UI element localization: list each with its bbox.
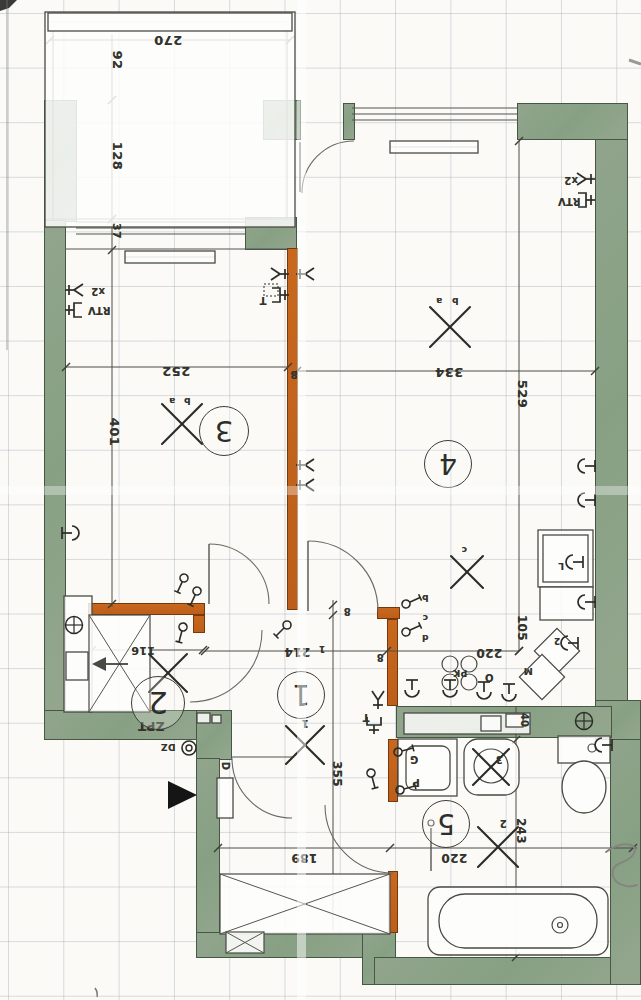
dimension-label: 334 (435, 365, 463, 380)
dimension-label: 2 (554, 636, 561, 646)
dimension-label: 116 (131, 644, 155, 657)
scan-speck (95, 988, 97, 997)
tv-outlet-icon (296, 479, 314, 491)
tv-outlet-icon (65, 284, 83, 296)
kitchen-counter (540, 587, 593, 620)
dimension-label: 214 (284, 645, 310, 659)
rtv-outlet-icon (578, 193, 595, 207)
switch-icon (401, 590, 423, 612)
dimension-label: a (436, 296, 442, 306)
meter-box (197, 713, 210, 723)
handwritten-mark (606, 844, 637, 886)
living-door-arc (308, 541, 378, 611)
dimension-label: T (259, 295, 266, 306)
dimension-label: T (362, 712, 369, 723)
fridge-cabinet-inner (543, 535, 588, 582)
dimension-label: G (410, 754, 419, 765)
dimension-label: D (220, 762, 231, 771)
doorbell-icon (182, 741, 196, 755)
rtv-outlet-icon (272, 288, 289, 302)
room-number-1: 1 (277, 671, 325, 719)
vent-icon (66, 617, 83, 634)
tv-outlet-icon (271, 268, 289, 280)
dimension-label: 105 (515, 615, 529, 641)
dimension-label: L (558, 561, 564, 571)
dimension-label: 252 (162, 364, 190, 379)
dimension-label: 92 (110, 51, 125, 70)
room2-door-arc (190, 630, 262, 702)
worktop-box (481, 716, 501, 731)
room-number-5: 5 (422, 800, 470, 848)
dimension-label: 270 (154, 33, 182, 48)
balcony-railing (48, 13, 292, 31)
outlet-icon (62, 526, 79, 540)
dimension-label: b (452, 296, 459, 306)
dimension-label: c (461, 545, 467, 555)
dimension-label: 3 (495, 754, 502, 765)
vent-icon (576, 713, 593, 730)
scan-corner-mark (0, 0, 17, 11)
tv-outlet-icon (372, 691, 384, 709)
dimension-label: 8 (376, 652, 383, 663)
dimension-label: PK (453, 668, 467, 678)
dimension-label: DZ (161, 742, 176, 752)
dimension-label: 529 (515, 380, 530, 408)
radiator (390, 141, 478, 153)
tv-outlet-icon (296, 268, 314, 280)
tv-outlet-icon (296, 459, 314, 471)
outlet-icon (502, 684, 516, 701)
outlet-icon (578, 493, 595, 507)
dimension-label: 2 (499, 818, 506, 829)
switch-icon (361, 768, 385, 792)
outlet-icon (477, 682, 491, 699)
tv-outlet-icon (577, 173, 595, 185)
dimension-label: 37 (110, 223, 123, 239)
dimension-label: b (184, 396, 191, 406)
dimension-label: M (523, 666, 532, 676)
dimension-label: 128 (110, 142, 125, 170)
dimension-label: 220 (441, 851, 467, 865)
dimension-label: O (485, 672, 494, 683)
bath-door-arc (325, 805, 393, 873)
dimension-label: b (422, 593, 429, 603)
switch-icon (274, 621, 292, 639)
dimension-label: 220 (476, 646, 502, 660)
plan-drawing (0, 0, 641, 1000)
dimension-label: 8 (343, 606, 350, 617)
switch-icon (169, 622, 193, 646)
dimension-label: 40 (519, 713, 530, 728)
switch-icon (401, 618, 423, 640)
rtv-outlet-icon (65, 303, 82, 317)
dimension-label: c (422, 613, 428, 623)
bathtub-inner (439, 894, 597, 948)
dimension-label: 401 (107, 418, 122, 446)
dimension-label: P (412, 777, 420, 788)
room-number-2: 2 (131, 676, 185, 730)
radiator (125, 251, 215, 263)
entrance-arrow-icon (168, 781, 197, 809)
vent-shaft-box (66, 652, 88, 680)
room3-door-arc (209, 544, 269, 604)
dimension-label: 189 (291, 851, 317, 865)
room-number-4: 4 (424, 440, 472, 488)
entry-door-leaf (217, 778, 233, 818)
dimension-label: a (169, 396, 175, 406)
floor-plan-scan: 27092128374012528334529105x2RTVx2RTV2141… (0, 0, 641, 1000)
dimension-label: RTV (557, 196, 580, 207)
dimension-label: 355 (330, 761, 344, 787)
balcony-door-arc (302, 141, 354, 193)
dimension-label: 243 (514, 818, 528, 844)
entry-door-arc (232, 758, 292, 818)
outlet-icon (578, 459, 595, 473)
dimension-label: x2 (564, 175, 578, 186)
meter-box (212, 715, 221, 723)
scan-edge-mark (629, 60, 641, 64)
dimension-label: d (422, 633, 429, 643)
switch-icon (170, 573, 192, 595)
dimension-label: RTV (87, 305, 110, 316)
outlet-icon (405, 680, 419, 697)
dimension-label: 1 (301, 718, 308, 729)
room-number-3: 3 (199, 406, 249, 456)
dimension-label: 8 (290, 368, 298, 381)
dimension-label: x2 (91, 286, 105, 297)
toilet-tank (558, 736, 610, 763)
dimension-label: 1 (319, 644, 326, 654)
switch-icon (183, 586, 205, 608)
toilet-bowl (562, 761, 606, 813)
